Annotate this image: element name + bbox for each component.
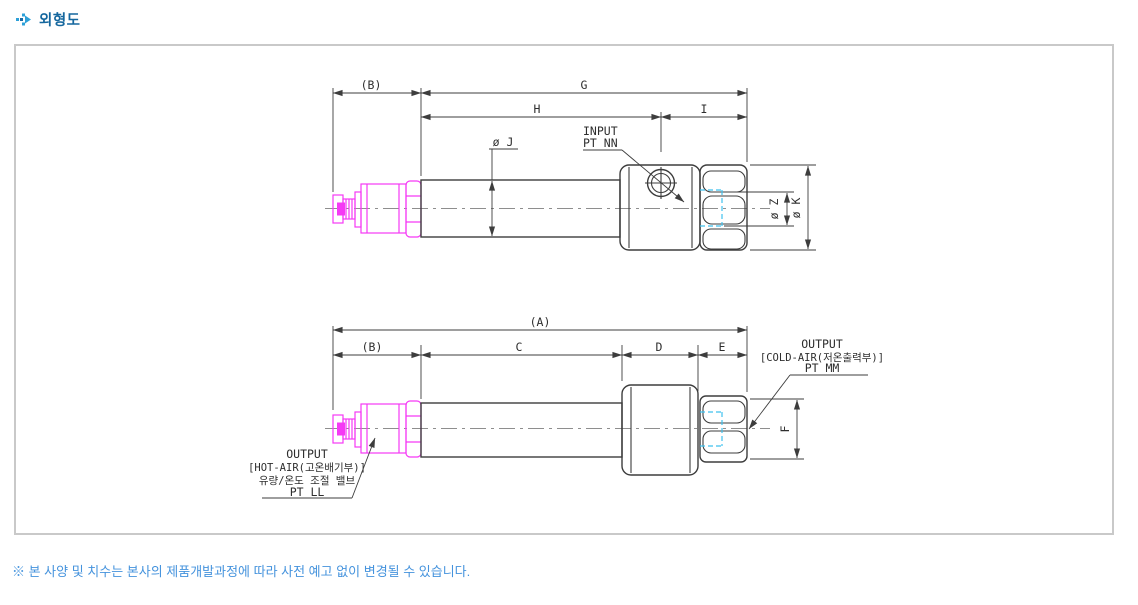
dim-label-d: D [656,340,663,354]
page-title: 외형도 [39,9,81,30]
dim-label-a: (A) [530,315,551,329]
dim-label-e: E [719,340,726,354]
dim-label-dia-z: ø Z [767,199,781,220]
bottom-valve-body [622,385,698,475]
dim-label-dia-k: ø K [789,198,803,219]
top-end-nut [700,165,747,250]
dim-label-h: H [534,102,541,116]
top-view: (B) G H I ø J INPUT PT NN ø Z [325,78,816,250]
drawing-frame [15,45,1113,534]
dim-label-i: I [701,102,708,116]
cold-air-label-line1: OUTPUT [801,337,843,351]
bottom-view: (A) (B) C D E F OUTPUT [COLD-AIR(저온출력부)]… [248,315,884,499]
hot-air-label-line1: OUTPUT [286,447,328,461]
dim-label-b-bottom: (B) [362,340,383,354]
dim-label-c: C [516,340,523,354]
dim-label-g: G [581,78,588,92]
disclaimer-note: ※ 본 사양 및 치수는 본사의 제품개발과정에 따라 사전 예고 없이 변경될… [12,561,470,580]
section-header: 외형도 [16,9,81,30]
hot-air-label-line2: [HOT-AIR(고온배기부)] [248,462,366,474]
bottom-body-tube [421,403,622,457]
page: (B) G H I ø J INPUT PT NN ø Z [0,0,1138,605]
arrow-bullet-icon [16,12,32,27]
hot-air-label-line4: PT LL [290,485,325,499]
cold-air-label-line3: PT MM [805,361,840,375]
dim-label-b-top: (B) [361,78,382,92]
input-label-line2: PT NN [583,136,618,150]
technical-drawing: (B) G H I ø J INPUT PT NN ø Z [0,0,1138,605]
top-valve-body [620,165,700,250]
bottom-dimensions: (A) (B) C D E F OUTPUT [COLD-AIR(저온출력부)]… [248,315,884,499]
dim-label-dia-j: ø J [493,135,514,149]
dim-label-f: F [778,425,792,432]
